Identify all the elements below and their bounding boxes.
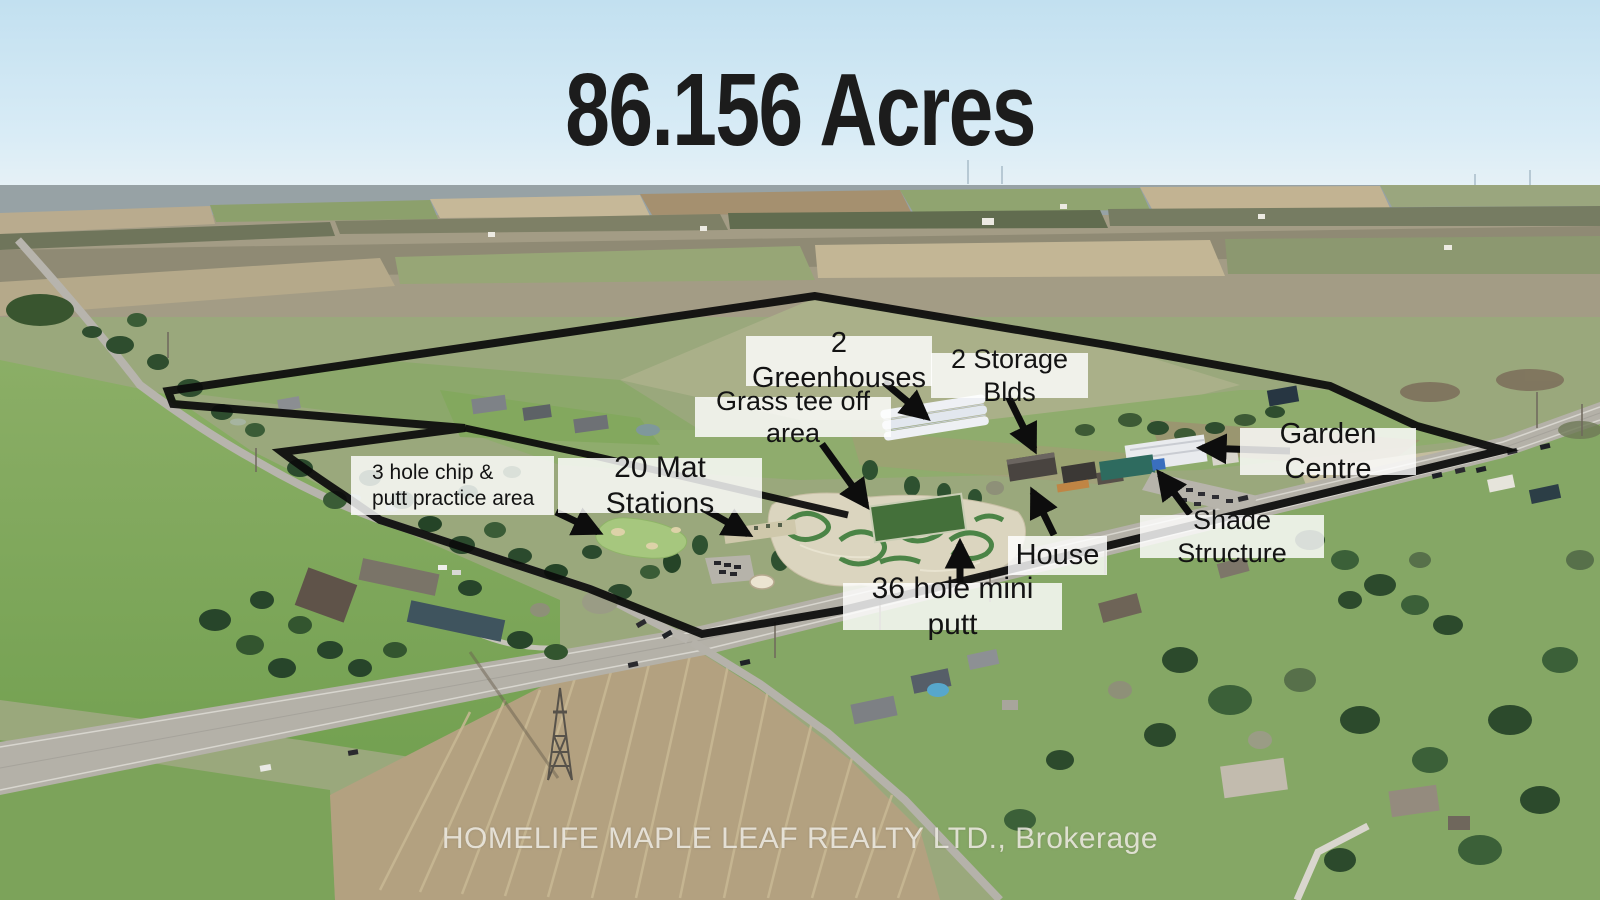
label-grass-tee: Grass tee off area [695,397,891,437]
label-chip-putt: 3 hole chip & putt practice area [351,456,554,515]
label-chip-putt-line2: putt practice area [372,486,534,511]
sky [0,0,1600,195]
label-mini-putt: 36 hole mini putt [843,583,1062,630]
label-shade-structure: Shade Structure [1140,515,1324,558]
annotated-aerial-photo: 86.156 Acres 2 Greenhouses 2 Storage Bld… [0,0,1600,900]
label-house: House [1008,536,1107,575]
brokerage-watermark: HOMELIFE MAPLE LEAF REALTY LTD., Brokera… [0,822,1600,856]
label-garden-centre: Garden Centre [1240,428,1416,475]
shade-structure-canopy [1151,458,1165,471]
label-storage-buildings: 2 Storage Blds [931,353,1088,398]
label-mat-stations: 20 Mat Stations [558,458,762,513]
label-greenhouses: 2 Greenhouses [746,336,932,386]
label-chip-putt-line1: 3 hole chip & [372,460,493,485]
